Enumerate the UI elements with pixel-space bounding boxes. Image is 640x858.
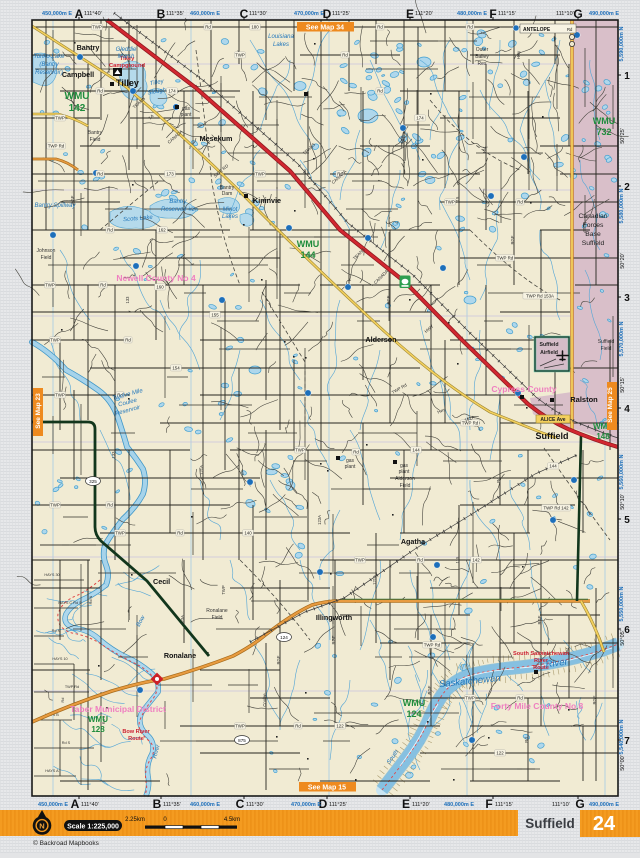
svg-text:111°30': 111°30': [249, 11, 267, 17]
svg-text:TWP Rd 142: TWP Rd 142: [543, 506, 569, 511]
svg-text:Rd: Rd: [107, 228, 113, 233]
svg-text:Forces: Forces: [583, 222, 604, 229]
svg-text:173: 173: [166, 172, 174, 177]
svg-text:Rd: Rd: [125, 338, 131, 343]
svg-text:Johnson: Johnson: [37, 248, 56, 254]
svg-text:Suffield: Suffield: [539, 342, 558, 348]
svg-text:Field: Field: [601, 346, 612, 352]
svg-text:144: 144: [549, 464, 557, 469]
svg-text:4.5km: 4.5km: [224, 817, 240, 823]
svg-text:Rd: Rd: [524, 737, 529, 743]
svg-text:Rd: Rd: [61, 698, 65, 703]
svg-text:Hwy: Hwy: [516, 50, 521, 59]
svg-text:Scale 1:225,000: Scale 1:225,000: [67, 824, 119, 831]
svg-text:5,560,000m N: 5,560,000m N: [619, 455, 625, 490]
svg-text:Rd: Rd: [517, 200, 523, 205]
svg-text:Suffield: Suffield: [598, 339, 615, 345]
svg-text:Lakes: Lakes: [222, 214, 238, 220]
svg-text:Cecil: Cecil: [153, 577, 170, 586]
svg-text:Rd: Rd: [100, 283, 106, 288]
svg-text:123A: 123A: [317, 515, 322, 525]
svg-text:TWP: TWP: [235, 724, 245, 729]
svg-text:TWP: TWP: [45, 283, 55, 288]
svg-text:162: 162: [158, 228, 166, 233]
svg-text:WMU: WMU: [403, 698, 426, 708]
svg-text:Kininvie: Kininvie: [253, 196, 281, 205]
svg-text:180: 180: [251, 25, 259, 30]
svg-text:Alderson: Alderson: [365, 335, 396, 344]
svg-text:TWP: TWP: [55, 393, 65, 398]
svg-text:111°25': 111°25': [329, 802, 347, 808]
svg-text:115: 115: [455, 196, 460, 203]
svg-text:4: 4: [624, 404, 630, 415]
svg-text:WMU: WMU: [65, 91, 90, 102]
svg-text:Rd: Rd: [467, 25, 473, 30]
svg-text:50°15': 50°15': [620, 377, 626, 393]
svg-text:plant: plant: [181, 112, 192, 118]
svg-text:RGE: RGE: [386, 295, 391, 304]
svg-text:Ronalane: Ronalane: [164, 651, 196, 660]
svg-text:plant: plant: [399, 469, 410, 475]
svg-text:Rd S: Rd S: [62, 741, 71, 745]
svg-text:Bantry: Bantry: [88, 130, 103, 136]
svg-text:See Map 25: See Map 25: [607, 387, 614, 423]
svg-text:Rd: Rd: [377, 25, 383, 30]
svg-text:ANTELOPE: ANTELOPE: [523, 27, 551, 33]
svg-text:121A: 121A: [199, 465, 204, 475]
svg-text:5,580,000m N: 5,580,000m N: [619, 189, 625, 224]
svg-text:174: 174: [168, 89, 176, 94]
svg-text:50°20': 50°20': [620, 253, 626, 269]
svg-text:111°30': 111°30': [246, 802, 264, 808]
svg-text:Minot: Minot: [223, 207, 238, 213]
svg-text:TWP: TWP: [50, 503, 60, 508]
svg-text:460,000m E: 460,000m E: [190, 802, 220, 808]
svg-text:Ralston: Ralston: [570, 395, 598, 404]
svg-text:111°20': 111°20': [412, 802, 430, 808]
svg-text:160: 160: [156, 285, 164, 290]
svg-text:Campbell: Campbell: [62, 70, 94, 79]
svg-text:450,000m E: 450,000m E: [38, 802, 68, 808]
svg-text:TWP Rd: TWP Rd: [424, 643, 441, 648]
svg-text:111°35': 111°35': [166, 11, 184, 17]
svg-text:See Map 23: See Map 23: [35, 393, 42, 429]
svg-text:HAYS C Rd S: HAYS C Rd S: [58, 601, 82, 605]
svg-text:HAYS 10: HAYS 10: [52, 657, 67, 661]
svg-text:TWP Rd: TWP Rd: [65, 685, 79, 689]
svg-text:See Map 15: See Map 15: [308, 785, 346, 792]
svg-text:Campground: Campground: [109, 63, 146, 69]
svg-text:TWP Rd: TWP Rd: [497, 256, 514, 261]
svg-text:Lakes: Lakes: [273, 42, 289, 48]
svg-text:Bantry Spillway: Bantry Spillway: [34, 203, 76, 209]
svg-text:Marsh: Marsh: [118, 54, 135, 60]
svg-text:Rd N: Rd N: [89, 595, 93, 604]
svg-text:Illingworth: Illingworth: [316, 613, 352, 622]
svg-text:111°25': 111°25': [332, 11, 350, 17]
svg-text:RGE: RGE: [510, 235, 515, 244]
svg-text:RGE: RGE: [400, 135, 405, 144]
svg-text:3: 3: [624, 293, 630, 304]
svg-text:122: 122: [336, 724, 344, 729]
svg-text:ALICE Ave: ALICE Ave: [540, 417, 565, 423]
svg-text:(Bantry: (Bantry: [39, 62, 59, 68]
svg-text:480,000m E: 480,000m E: [444, 802, 474, 808]
svg-text:Field: Field: [400, 483, 411, 489]
svg-text:Rd: Rd: [496, 477, 501, 483]
svg-text:Bantry: Bantry: [169, 199, 187, 205]
svg-text:124: 124: [406, 709, 421, 719]
svg-text:133: 133: [111, 451, 116, 459]
svg-text:TWP Rd 153A: TWP Rd 153A: [526, 294, 554, 299]
svg-text:174: 174: [416, 116, 424, 121]
svg-text:Tilley: Tilley: [116, 78, 139, 88]
svg-text:Rd: Rd: [377, 89, 383, 94]
svg-text:Louisiana: Louisiana: [268, 34, 294, 40]
svg-text:142: 142: [472, 558, 480, 563]
svg-text:Gleddie: Gleddie: [116, 47, 137, 53]
svg-text:142: 142: [69, 103, 86, 114]
svg-text:1: 1: [624, 71, 630, 82]
svg-text:128: 128: [91, 725, 105, 734]
svg-text:C: C: [236, 797, 245, 811]
svg-text:Taber Municipal District: Taber Municipal District: [70, 704, 166, 714]
svg-text:Rd: Rd: [353, 450, 359, 455]
svg-text:B: B: [153, 797, 162, 811]
svg-text:Ronalane: Ronalane: [206, 608, 228, 614]
svg-text:TWP: TWP: [92, 25, 102, 30]
svg-text:133: 133: [125, 296, 130, 304]
svg-text:Reservoir #2: Reservoir #2: [161, 207, 196, 213]
svg-text:Rd: Rd: [417, 558, 423, 563]
svg-text:148: 148: [596, 432, 610, 441]
svg-text:plant: plant: [345, 464, 356, 470]
svg-text:Outer: Outer: [476, 47, 489, 53]
svg-text:450,000m E: 450,000m E: [42, 11, 72, 17]
svg-text:TWP: TWP: [445, 200, 455, 205]
svg-text:Field: Field: [41, 255, 52, 261]
svg-text:144: 144: [412, 448, 420, 453]
svg-text:Rd: Rd: [517, 696, 523, 701]
svg-text:RGE: RGE: [592, 695, 597, 704]
svg-text:F: F: [485, 797, 492, 811]
svg-text:Suffield: Suffield: [536, 431, 569, 441]
svg-text:111°35': 111°35': [163, 802, 181, 808]
svg-text:Rd: Rd: [295, 724, 301, 729]
svg-text:480,000m E: 480,000m E: [457, 11, 487, 17]
svg-text:Rd N: Rd N: [52, 629, 61, 633]
svg-text:5: 5: [624, 515, 630, 526]
svg-text:Airfield: Airfield: [540, 350, 558, 356]
svg-text:RGE: RGE: [537, 615, 542, 624]
svg-text:490,000m E: 490,000m E: [589, 802, 619, 808]
svg-text:RGE: RGE: [427, 685, 432, 694]
svg-text:TWP: TWP: [221, 585, 226, 595]
svg-text:TWP: TWP: [115, 531, 125, 536]
svg-text:Route: Route: [128, 736, 144, 742]
svg-text:Rd: Rd: [567, 27, 573, 32]
svg-text:TWP: TWP: [255, 172, 265, 177]
svg-text:Base: Base: [585, 231, 601, 238]
svg-text:Bailey: Bailey: [475, 54, 489, 60]
svg-text:TWP: TWP: [465, 696, 475, 701]
svg-text:Rd: Rd: [205, 25, 211, 30]
svg-text:HAYS 30: HAYS 30: [44, 573, 59, 577]
svg-text:Rd: Rd: [97, 89, 103, 94]
svg-text:TWP: TWP: [55, 116, 65, 121]
svg-text:5,570,000m N: 5,570,000m N: [619, 322, 625, 357]
svg-text:124: 124: [280, 635, 288, 640]
svg-text:TWP Rd: TWP Rd: [48, 144, 65, 149]
svg-text:7: 7: [624, 736, 630, 747]
svg-text:Tunko Lake: Tunko Lake: [34, 54, 66, 60]
svg-text:Newell County No 4: Newell County No 4: [116, 273, 196, 283]
svg-text:South Saskatchewan: South Saskatchewan: [513, 651, 570, 657]
svg-text:Field: Field: [90, 137, 101, 143]
svg-text:325: 325: [89, 479, 97, 484]
svg-text:140: 140: [244, 531, 252, 536]
svg-text:E: E: [402, 797, 410, 811]
svg-text:Suffield: Suffield: [525, 816, 575, 831]
svg-text:115: 115: [455, 556, 460, 563]
svg-text:TWP: TWP: [235, 53, 245, 58]
svg-text:5,590,000m N: 5,590,000m N: [619, 27, 625, 62]
svg-text:Bow River: Bow River: [122, 729, 150, 735]
svg-text:RGE: RGE: [276, 655, 281, 664]
svg-text:460,000m E: 460,000m E: [190, 11, 220, 17]
svg-text:HAYS A: HAYS A: [45, 769, 59, 773]
svg-text:123A: 123A: [180, 615, 185, 625]
svg-text:Bantry: Bantry: [77, 43, 100, 52]
svg-text:Mesekum: Mesekum: [200, 134, 233, 143]
svg-text:732: 732: [596, 127, 611, 137]
svg-text:A: A: [71, 797, 80, 811]
svg-text:122: 122: [496, 751, 504, 756]
svg-text:Agatha: Agatha: [401, 537, 426, 546]
svg-text:155: 155: [211, 313, 219, 318]
svg-text:111°20': 111°20': [415, 11, 433, 17]
svg-text:470,000m E: 470,000m E: [294, 11, 324, 17]
svg-text:TWP: TWP: [50, 338, 60, 343]
svg-text:154: 154: [172, 366, 180, 371]
svg-text:Canadian: Canadian: [578, 213, 607, 220]
svg-text:2.25km: 2.25km: [125, 817, 145, 823]
svg-text:50°00': 50°00': [620, 755, 626, 771]
svg-text:TWP: TWP: [355, 558, 365, 563]
svg-text:Rd: Rd: [177, 531, 183, 536]
svg-text:Cypress County: Cypress County: [491, 384, 556, 394]
svg-text:RGE: RGE: [331, 635, 336, 644]
svg-text:Field: Field: [212, 615, 223, 621]
svg-text:WMU: WMU: [88, 715, 108, 724]
svg-text:111°40': 111°40': [84, 11, 102, 17]
svg-text:Res: Res: [478, 61, 487, 67]
svg-text:Forty Mile County No 8: Forty Mile County No 8: [491, 701, 584, 711]
svg-text:WMU: WMU: [593, 116, 616, 126]
svg-text:50°10': 50°10': [620, 494, 626, 510]
svg-text:Dam: Dam: [222, 191, 233, 197]
svg-text:144: 144: [300, 250, 315, 260]
svg-text:TWP: TWP: [295, 448, 305, 453]
svg-text:5,540,000m N: 5,540,000m N: [619, 720, 625, 755]
svg-text:N: N: [39, 822, 44, 831]
svg-text:Rd: Rd: [342, 53, 348, 58]
svg-text:121A: 121A: [372, 575, 377, 585]
svg-text:50°25': 50°25': [620, 128, 626, 144]
svg-text:See Map 34: See Map 34: [306, 25, 344, 32]
svg-text:WMU: WMU: [297, 239, 320, 249]
svg-text:G: G: [575, 797, 584, 811]
svg-text:5,550,000m N: 5,550,000m N: [619, 587, 625, 622]
svg-text:Coulee: Coulee: [262, 693, 267, 707]
svg-text:111°15': 111°15': [498, 11, 516, 17]
svg-text:Alderson: Alderson: [395, 476, 415, 482]
svg-text:104: 104: [482, 146, 487, 154]
svg-text:111°10': 111°10': [552, 802, 570, 808]
svg-text:Reservoir): Reservoir): [35, 70, 63, 76]
svg-text:Suffield: Suffield: [582, 240, 605, 247]
svg-text:470,000m E: 470,000m E: [291, 802, 321, 808]
svg-text:111°10': 111°10': [556, 11, 574, 17]
svg-text:Rd: Rd: [97, 172, 103, 177]
svg-text:490,000m E: 490,000m E: [589, 11, 619, 17]
svg-text:© Backroad Mapbooks: © Backroad Mapbooks: [33, 839, 100, 847]
svg-text:111°40': 111°40': [81, 802, 99, 808]
svg-text:50°05': 50°05': [620, 630, 626, 646]
svg-text:24: 24: [593, 813, 616, 835]
svg-text:111°15': 111°15': [495, 802, 513, 808]
svg-text:875: 875: [238, 738, 246, 743]
svg-text:2: 2: [624, 182, 630, 193]
svg-text:Rd: Rd: [107, 503, 113, 508]
